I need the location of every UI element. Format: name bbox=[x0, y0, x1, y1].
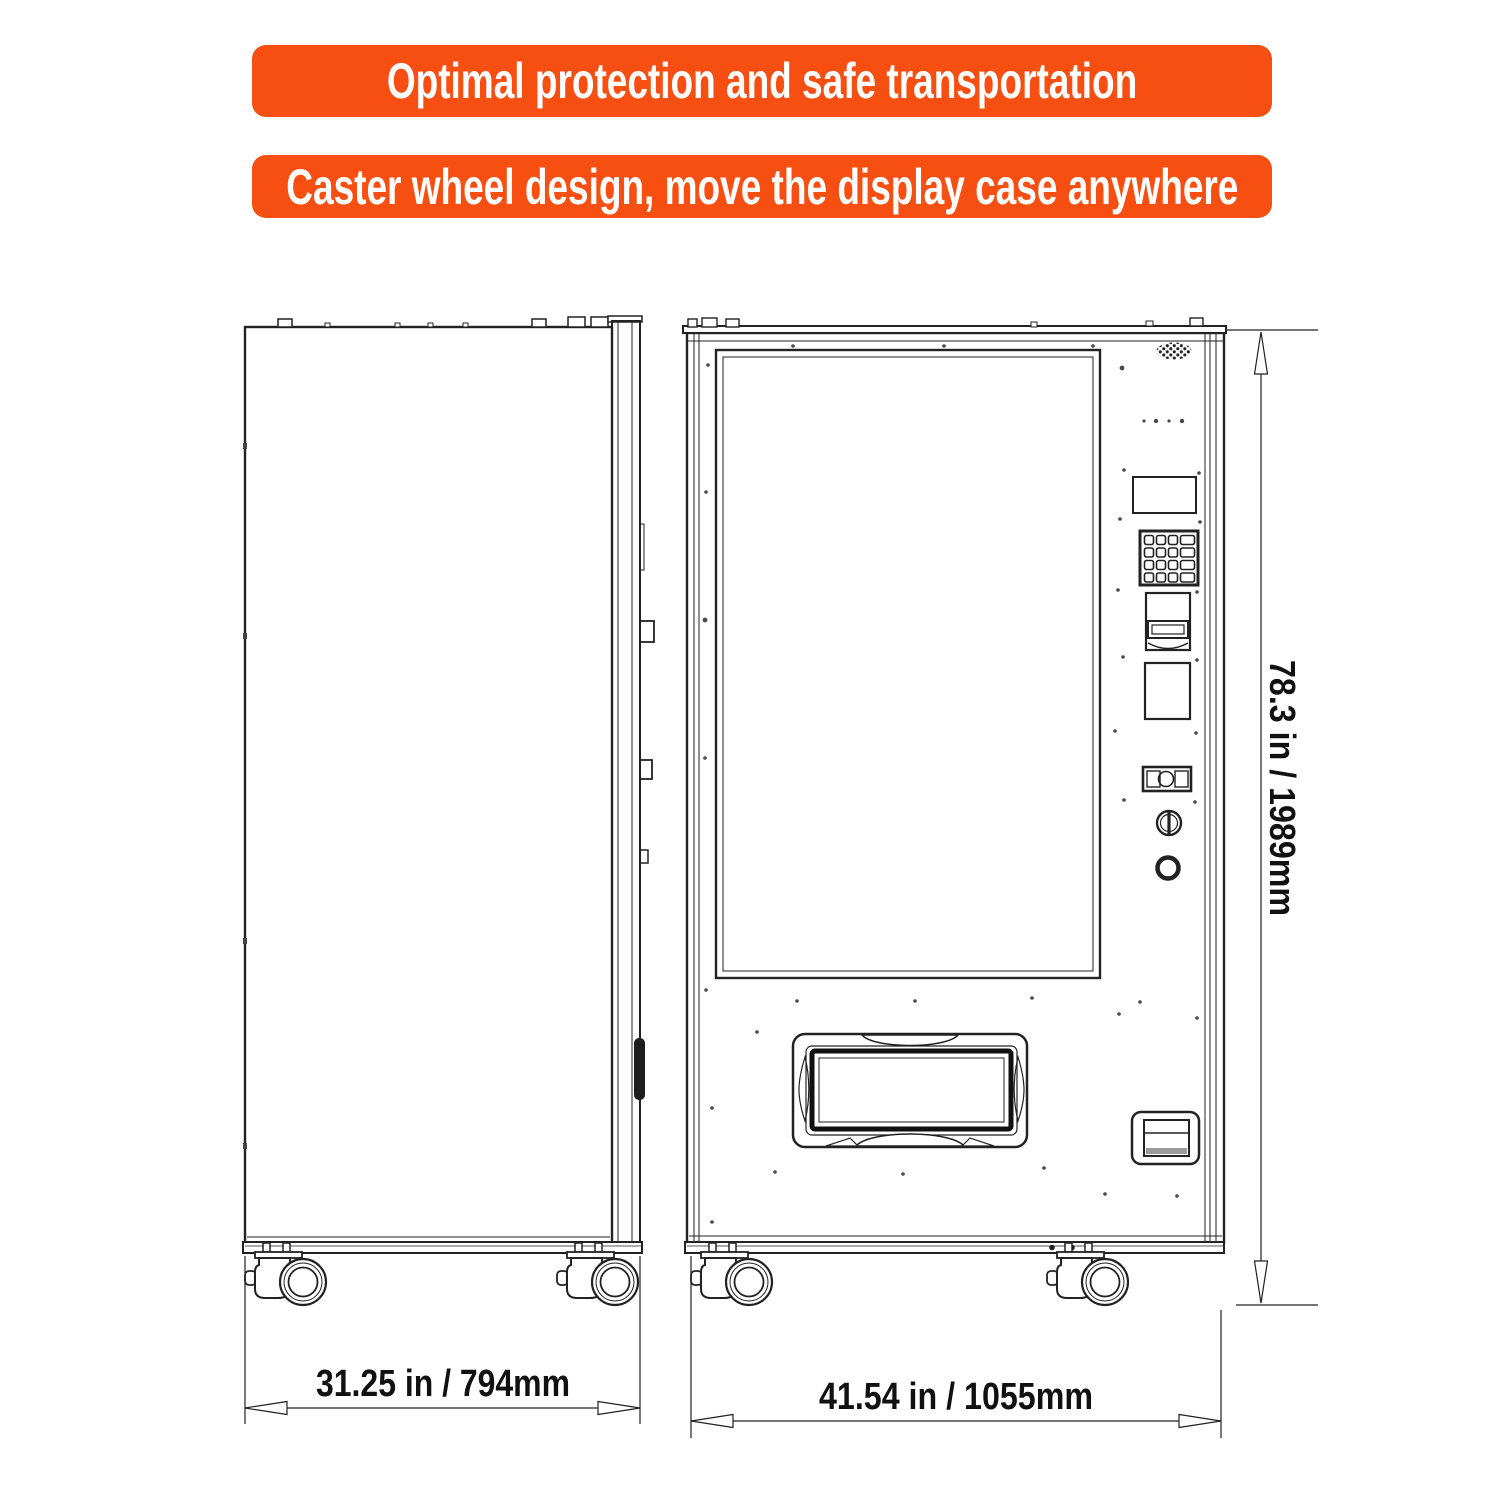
card-reader-panel bbox=[1145, 663, 1190, 719]
coin-return-icon bbox=[1158, 858, 1179, 879]
bill-acceptor-icon bbox=[1146, 593, 1190, 650]
keypad-icon bbox=[1140, 531, 1198, 585]
rivet-dots bbox=[703, 344, 1202, 1224]
height-dimension: 78.3 in / 1989mm bbox=[1226, 330, 1318, 1305]
speaker-grille-icon bbox=[1157, 343, 1192, 360]
height-dimension-label: 78.3 in / 1989mm bbox=[1262, 660, 1303, 916]
side-lock-bar bbox=[634, 1038, 645, 1100]
price-display bbox=[1133, 477, 1196, 513]
glass-window bbox=[716, 350, 1100, 978]
receipt-slot-icon bbox=[1132, 1112, 1199, 1164]
side-view-drawing bbox=[243, 316, 654, 1305]
side-width-dimension-label: 31.25 in / 794mm bbox=[316, 1363, 570, 1405]
front-width-dimension-label: 41.54 in / 1055mm bbox=[819, 1376, 1093, 1418]
front-view-drawing bbox=[683, 318, 1226, 1305]
product-diagram: Optimal protection and safe transportati… bbox=[0, 0, 1500, 1500]
coin-slot-icon bbox=[1143, 767, 1191, 791]
delivery-port bbox=[793, 1034, 1027, 1147]
technical-drawing: 78.3 in / 1989mm 31.25 in / 794mm 41.54 … bbox=[0, 0, 1500, 1500]
side-door-edge bbox=[608, 316, 654, 1250]
key-lock-icon bbox=[1157, 811, 1181, 835]
